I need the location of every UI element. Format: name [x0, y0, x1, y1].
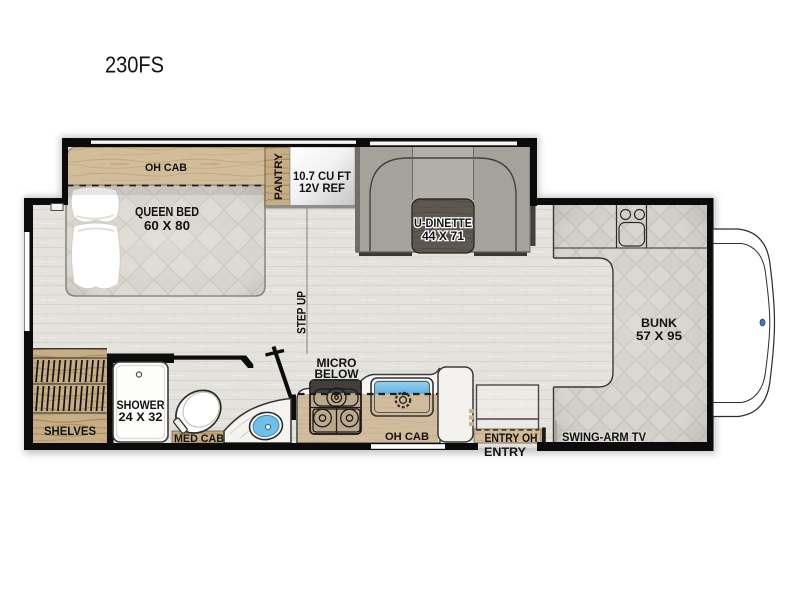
svg-text:PANTRY: PANTRY: [273, 152, 285, 200]
svg-text:OH CAB: OH CAB: [385, 431, 429, 443]
svg-text:60 X 80: 60 X 80: [144, 219, 190, 233]
svg-text:44 X 71: 44 X 71: [422, 229, 464, 243]
svg-text:10.7 CU FT: 10.7 CU FT: [293, 171, 351, 183]
svg-text:ENTRY: ENTRY: [484, 445, 526, 459]
svg-text:U-DINETTE: U-DINETTE: [414, 216, 472, 230]
svg-text:24 X 32: 24 X 32: [119, 412, 163, 424]
svg-text:STEP UP: STEP UP: [295, 291, 309, 334]
svg-text:57 X 95: 57 X 95: [636, 331, 683, 343]
svg-text:SHOWER: SHOWER: [117, 400, 166, 412]
svg-text:12V REF: 12V REF: [299, 183, 345, 195]
svg-text:SHELVES: SHELVES: [44, 426, 96, 438]
svg-text:OH CAB: OH CAB: [145, 162, 187, 174]
svg-text:BUNK: BUNK: [641, 318, 678, 330]
svg-text:230FS: 230FS: [105, 52, 164, 78]
svg-text:BELOW: BELOW: [315, 369, 359, 381]
svg-text:ENTRY OH: ENTRY OH: [485, 433, 538, 445]
svg-text:QUEEN BED: QUEEN BED: [135, 205, 199, 219]
